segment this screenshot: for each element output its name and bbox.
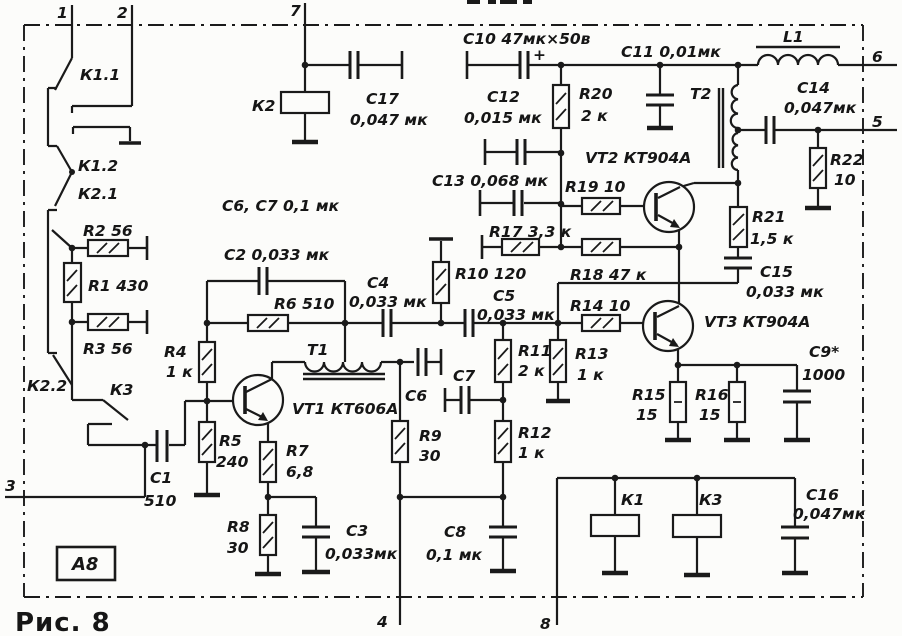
label-capacitor-C17: С17: [366, 90, 399, 108]
circuit-diagram: А8 Рис. 8 12765348К1.1К1.2К2.1К2.2К3R2 5…: [0, 0, 902, 636]
label-resistor-R20-val: 2 к: [581, 107, 608, 125]
module-border: [24, 25, 863, 597]
label-resistor-R7-val: 6,8: [286, 463, 314, 481]
label-resistor-R10: R10 120: [455, 265, 526, 283]
label-resistor-R12: R12: [518, 424, 552, 442]
resistor-R14-body: [582, 315, 620, 331]
resistor-R20-body: [553, 85, 569, 128]
label-capacitor-C12: С12: [487, 88, 520, 106]
label-relay-K2: К2: [252, 97, 275, 115]
label-contact-K2-2: К2.2: [27, 377, 67, 395]
label-transistor-VT3: VT3 КТ904А: [704, 313, 810, 331]
transformer-T1-winding: [303, 362, 385, 379]
label-resistor-R11: R11: [518, 342, 552, 360]
label-resistor-R12-val: 1 к: [518, 444, 545, 462]
label-pin-5: 5: [872, 113, 883, 131]
label-capacitor-C2: С2 0,033 мк: [224, 246, 330, 264]
label-contact-K3: К3: [110, 381, 133, 399]
label-capacitor-C14-val: 0,047мк: [784, 99, 857, 117]
label-capacitor-C1-val: 510: [144, 492, 177, 510]
label-capacitor-C15-val: 0,033 мк: [746, 283, 824, 301]
label-resistor-R22: R22: [830, 151, 864, 169]
label-pin-8: 8: [540, 615, 551, 633]
resistor-R18-body: [582, 239, 620, 255]
label-relay-K3: К3: [699, 491, 722, 509]
label-resistor-R21: R21: [752, 208, 786, 226]
label-resistor-R4-val: 1 к: [166, 363, 193, 381]
label-resistor-R17: R17 3,3 к: [489, 223, 572, 241]
label-resistor-R5-val: 240: [216, 453, 249, 471]
label-resistor-R19: R19 10: [565, 178, 626, 196]
resistor-R12-body: [495, 421, 511, 462]
label-contact-K2-1: К2.1: [78, 185, 118, 203]
label-capacitor-C8-val: 0,1 мк: [426, 546, 483, 564]
page-header-fragment: [467, 0, 532, 4]
label-pin-7: 7: [290, 2, 301, 20]
relay-K3-coil: [673, 515, 721, 537]
label-capacitor-C14: С14: [797, 79, 830, 97]
resistor-R17-body: [502, 239, 539, 255]
label-capacitor-C16-val: 0,047мк: [793, 505, 866, 523]
label-capacitor-C1: С1: [150, 469, 172, 487]
label-capacitor-C17-val: 0,047 мк: [350, 111, 428, 129]
resistor-R1-body: [64, 263, 81, 302]
resistor-R22-body: [810, 148, 826, 188]
label-capacitor-C4-val: 0,033 мк: [349, 293, 427, 311]
label-capacitor-C8: С8: [444, 523, 466, 541]
label-resistor-R18: R18 47 к: [570, 266, 647, 284]
label-resistor-R16: R16: [695, 386, 729, 404]
resistor-R11-body: [495, 340, 511, 382]
resistor-R4-body: [199, 342, 215, 382]
transistor-VT2-symbol: [644, 182, 694, 232]
label-resistor-R21-val: 1,5 к: [750, 230, 794, 248]
label-resistor-R13-val: 1 к: [577, 366, 604, 384]
label-capacitor-C9-val: 1000: [802, 366, 845, 384]
label-resistor-R13: R13: [575, 345, 609, 363]
label-resistor-R8-val: 30: [227, 539, 249, 557]
resistor-R3-body: [88, 314, 128, 330]
label-pin-1: 1: [57, 4, 68, 22]
label-resistor-R15-val: 15: [636, 406, 658, 424]
label-capacitor-C7: С7: [453, 367, 475, 385]
resistor-R8-body: [260, 515, 276, 555]
label-inductor-L1: L1: [783, 28, 804, 46]
transistor-VT1-symbol: [233, 375, 283, 425]
label-resistor-R6: R6 510: [274, 295, 335, 313]
label-transistor-VT2: VT2 КТ904А: [585, 149, 691, 167]
label-resistor-R14: R14 10: [570, 297, 631, 315]
resistor-R7-body: [260, 442, 276, 482]
label-resistor-R9: R9: [419, 427, 442, 445]
inductor-L1-winding: [756, 47, 840, 65]
label-capacitor-C9: С9*: [809, 343, 839, 361]
module-label: А8: [70, 554, 98, 575]
label-capacitor-C12-val: 0,015 мк: [464, 109, 542, 127]
label-resistor-R15: R15: [632, 386, 666, 404]
label-pin-4: 4: [376, 613, 388, 631]
labels-layer: 12765348К1.1К1.2К2.1К2.2К3R2 56R1 430R3 …: [5, 2, 883, 633]
label-capacitor-C3-val: 0,033мк: [325, 545, 398, 563]
resistor-R19-body: [582, 198, 620, 214]
label-resistor-R4: R4: [164, 343, 187, 361]
label-capacitor-C10: С10 47мк×50в: [463, 30, 591, 48]
label-resistor-R16-val: 15: [699, 406, 721, 424]
resistor-R6-body: [248, 315, 288, 331]
resistor-R9-body: [392, 421, 408, 462]
label-capacitor-C15: С15: [760, 263, 793, 281]
label-capacitor-C16: С16: [806, 486, 839, 504]
label-resistor-R11-val: 2 к: [518, 362, 545, 380]
resistor-R13-body: [550, 340, 566, 382]
label-resistor-R7: R7: [286, 442, 309, 460]
schematic-figure: А8 Рис. 8 12765348К1.1К1.2К2.1К2.2К3R2 5…: [0, 0, 902, 636]
label-capacitor-C3: С3: [346, 522, 368, 540]
relay-K2-coil: [281, 92, 329, 113]
module-box: А8: [57, 547, 115, 580]
resistor-R2-body: [88, 240, 128, 256]
label-transformer-T2: Т2: [690, 85, 711, 103]
label-transistor-VT1: VT1 КТ606А: [292, 400, 398, 418]
label-resistor-R1: R1 430: [88, 277, 149, 295]
label-capacitor-C13: С13 0,068 мк: [432, 172, 548, 190]
label-pin-3: 3: [5, 477, 16, 495]
label-capacitor-C4: С4: [367, 274, 389, 292]
resistor-R5-body: [199, 422, 215, 462]
resistor-R21-body: [730, 207, 747, 247]
label-contact-K1-2: К1.2: [78, 157, 118, 175]
label-resistor-R5: R5: [219, 432, 242, 450]
label-capacitor-C5-val: 0,033 мк: [477, 306, 555, 324]
label-resistor-R20: R20: [579, 85, 613, 103]
label-pin-6: 6: [872, 48, 883, 66]
label-resistor-R3: R3 56: [83, 340, 133, 358]
label-transformer-T1: Т1: [307, 341, 328, 359]
label-resistor-R9-val: 30: [419, 447, 441, 465]
label-resistor-R2: R2 56: [83, 222, 133, 240]
label-relay-K1: К1: [621, 491, 644, 509]
resistor-R10-body: [433, 262, 449, 303]
label-capacitor-C11: С11 0,01мк: [621, 43, 721, 61]
label-capacitor-C10-plus: +: [533, 46, 546, 64]
label-capacitor-C5: С5: [493, 287, 515, 305]
label-resistor-R8: R8: [227, 518, 250, 536]
label-contact-K1-1: К1.1: [80, 66, 120, 84]
label-capacitor-C6: С6: [405, 387, 427, 405]
label-note-C6-C7: С6, С7 0,1 мк: [222, 197, 340, 215]
figure-caption: Рис. 8: [15, 608, 111, 636]
label-pin-2: 2: [117, 4, 128, 22]
relay-K1-coil: [591, 515, 639, 536]
transistor-VT3-symbol: [643, 301, 693, 351]
transformer-T2-winding: [719, 85, 738, 170]
label-resistor-R22-val: 10: [834, 171, 856, 189]
